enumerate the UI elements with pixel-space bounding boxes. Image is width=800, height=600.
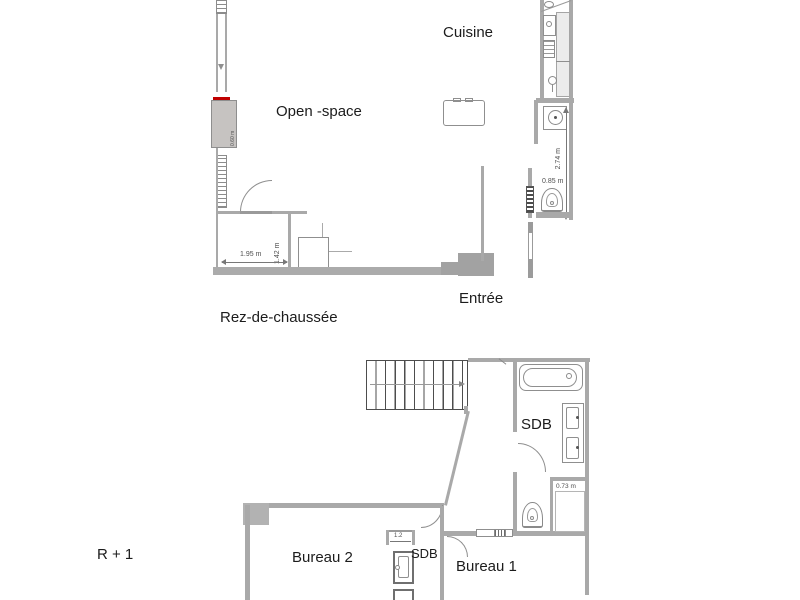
first-floor-plan: 1.2 0.73 m SDB Bureau 2 SDB Bureau 1 R +… bbox=[0, 0, 800, 600]
room-label-bureau2: Bureau 2 bbox=[292, 549, 353, 566]
dim-closet-width: 0.73 m bbox=[556, 483, 576, 490]
stairs-icon bbox=[366, 360, 468, 410]
dim-line bbox=[390, 541, 411, 542]
toilet-dot bbox=[530, 516, 534, 520]
wall bbox=[412, 530, 415, 545]
sink-pedestal-icon bbox=[393, 589, 414, 600]
faucet-dot bbox=[576, 416, 579, 419]
shower-icon bbox=[555, 491, 585, 532]
dim-sdb-small-width: 1.2 bbox=[394, 533, 402, 539]
wall bbox=[468, 358, 590, 362]
wall bbox=[550, 477, 553, 532]
wall bbox=[245, 505, 250, 600]
wall bbox=[513, 472, 517, 532]
wall bbox=[513, 359, 517, 432]
bathtub-drain-icon bbox=[566, 373, 572, 379]
wall bbox=[440, 506, 444, 600]
stairs-centerline bbox=[370, 384, 460, 385]
door-arc-icon bbox=[447, 536, 468, 557]
room-label-sdb-main: SDB bbox=[521, 416, 552, 433]
arrow-right-icon bbox=[459, 381, 465, 387]
wall bbox=[247, 503, 444, 508]
line bbox=[386, 530, 415, 532]
door-arc-icon bbox=[518, 443, 546, 472]
diagonal-wall bbox=[444, 411, 470, 506]
room-label-sdb-small: SDB bbox=[411, 546, 438, 561]
room-label-bureau1: Bureau 1 bbox=[456, 558, 517, 575]
faucet-dot bbox=[576, 446, 579, 449]
faucet-icon bbox=[395, 565, 400, 570]
wall bbox=[386, 530, 389, 545]
floor-plan-canvas: 0.60 m 1.42 m 1.95 m bbox=[0, 0, 800, 600]
wall bbox=[553, 477, 586, 481]
floor-label-first: R + 1 bbox=[97, 546, 133, 563]
radiator-fins-icon bbox=[494, 529, 506, 537]
